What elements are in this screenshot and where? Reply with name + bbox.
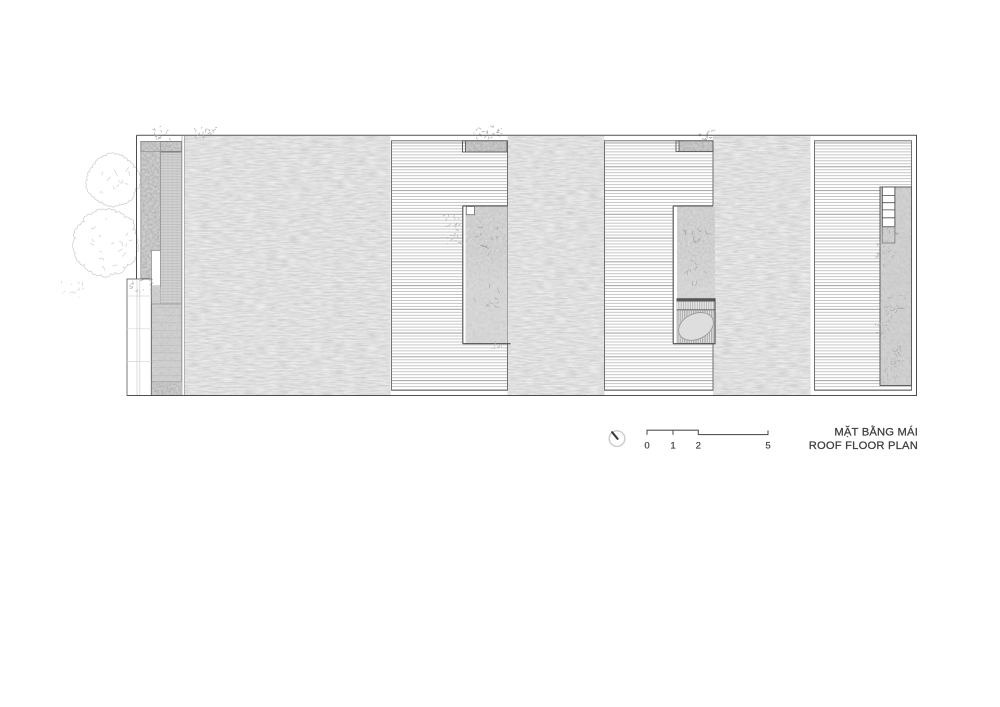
svg-text:MẶT BẰNG MÁI: MẶT BẰNG MÁI: [834, 425, 918, 438]
svg-text:ROOF FLOOR PLAN: ROOF FLOOR PLAN: [809, 440, 918, 452]
svg-text:0: 0: [644, 440, 649, 451]
svg-text:2: 2: [696, 440, 701, 451]
svg-text:1: 1: [670, 440, 675, 451]
svg-text:5: 5: [765, 440, 770, 451]
